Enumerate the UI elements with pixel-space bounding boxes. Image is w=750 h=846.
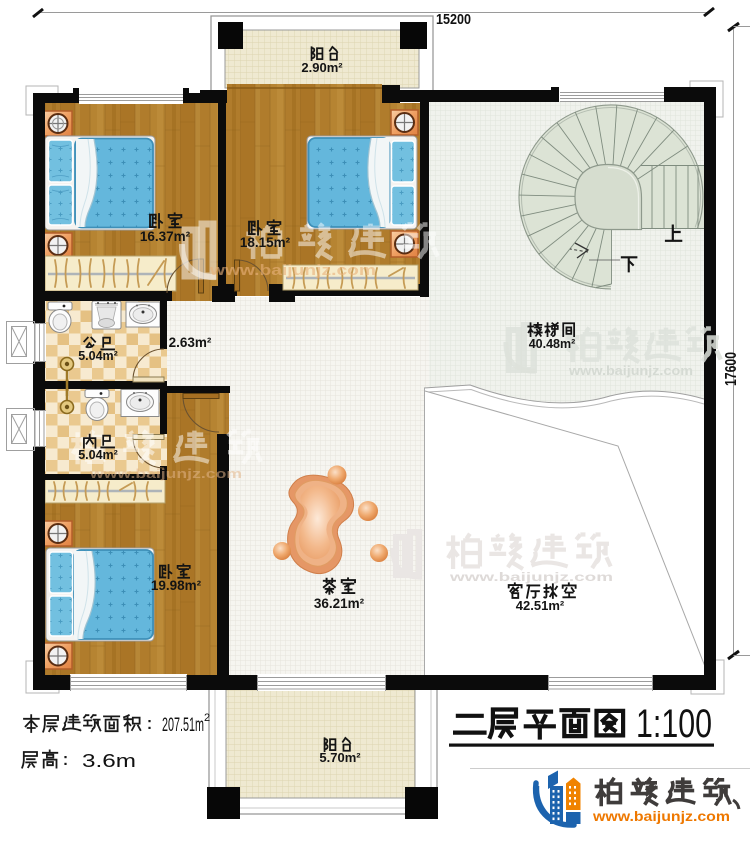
- svg-text:www.baijunjz.com: www.baijunjz.com: [209, 263, 376, 279]
- svg-text:2: 2: [204, 712, 210, 724]
- svg-text:www.baijunjz.com: www.baijunjz.com: [89, 466, 242, 481]
- svg-text:1:100: 1:100: [636, 702, 712, 746]
- svg-text:36.21m²: 36.21m²: [314, 596, 365, 611]
- svg-text:207.51m: 207.51m: [162, 715, 204, 736]
- svg-text:18.15m²: 18.15m²: [240, 235, 291, 250]
- svg-text:16.37m²: 16.37m²: [140, 229, 191, 244]
- svg-text:www.baijunjz.com: www.baijunjz.com: [448, 572, 613, 584]
- svg-text:42.51m²: 42.51m²: [516, 598, 565, 613]
- svg-text:www.baijunjz.com: www.baijunjz.com: [568, 364, 693, 378]
- svg-text:19.98m²: 19.98m²: [151, 578, 202, 593]
- svg-text:5.04m²: 5.04m²: [78, 448, 118, 462]
- svg-text:17600: 17600: [723, 352, 740, 386]
- svg-text:3.6m: 3.6m: [82, 751, 136, 771]
- svg-text:5.04m²: 5.04m²: [78, 349, 118, 363]
- svg-text:2.90m²: 2.90m²: [301, 60, 343, 75]
- svg-text:15200: 15200: [436, 11, 471, 28]
- svg-text:5.70m²: 5.70m²: [319, 750, 361, 765]
- svg-text:www.baijunjz.com: www.baijunjz.com: [592, 809, 730, 824]
- svg-text:2.63m²: 2.63m²: [169, 335, 212, 350]
- svg-text:40.48m²: 40.48m²: [529, 337, 576, 351]
